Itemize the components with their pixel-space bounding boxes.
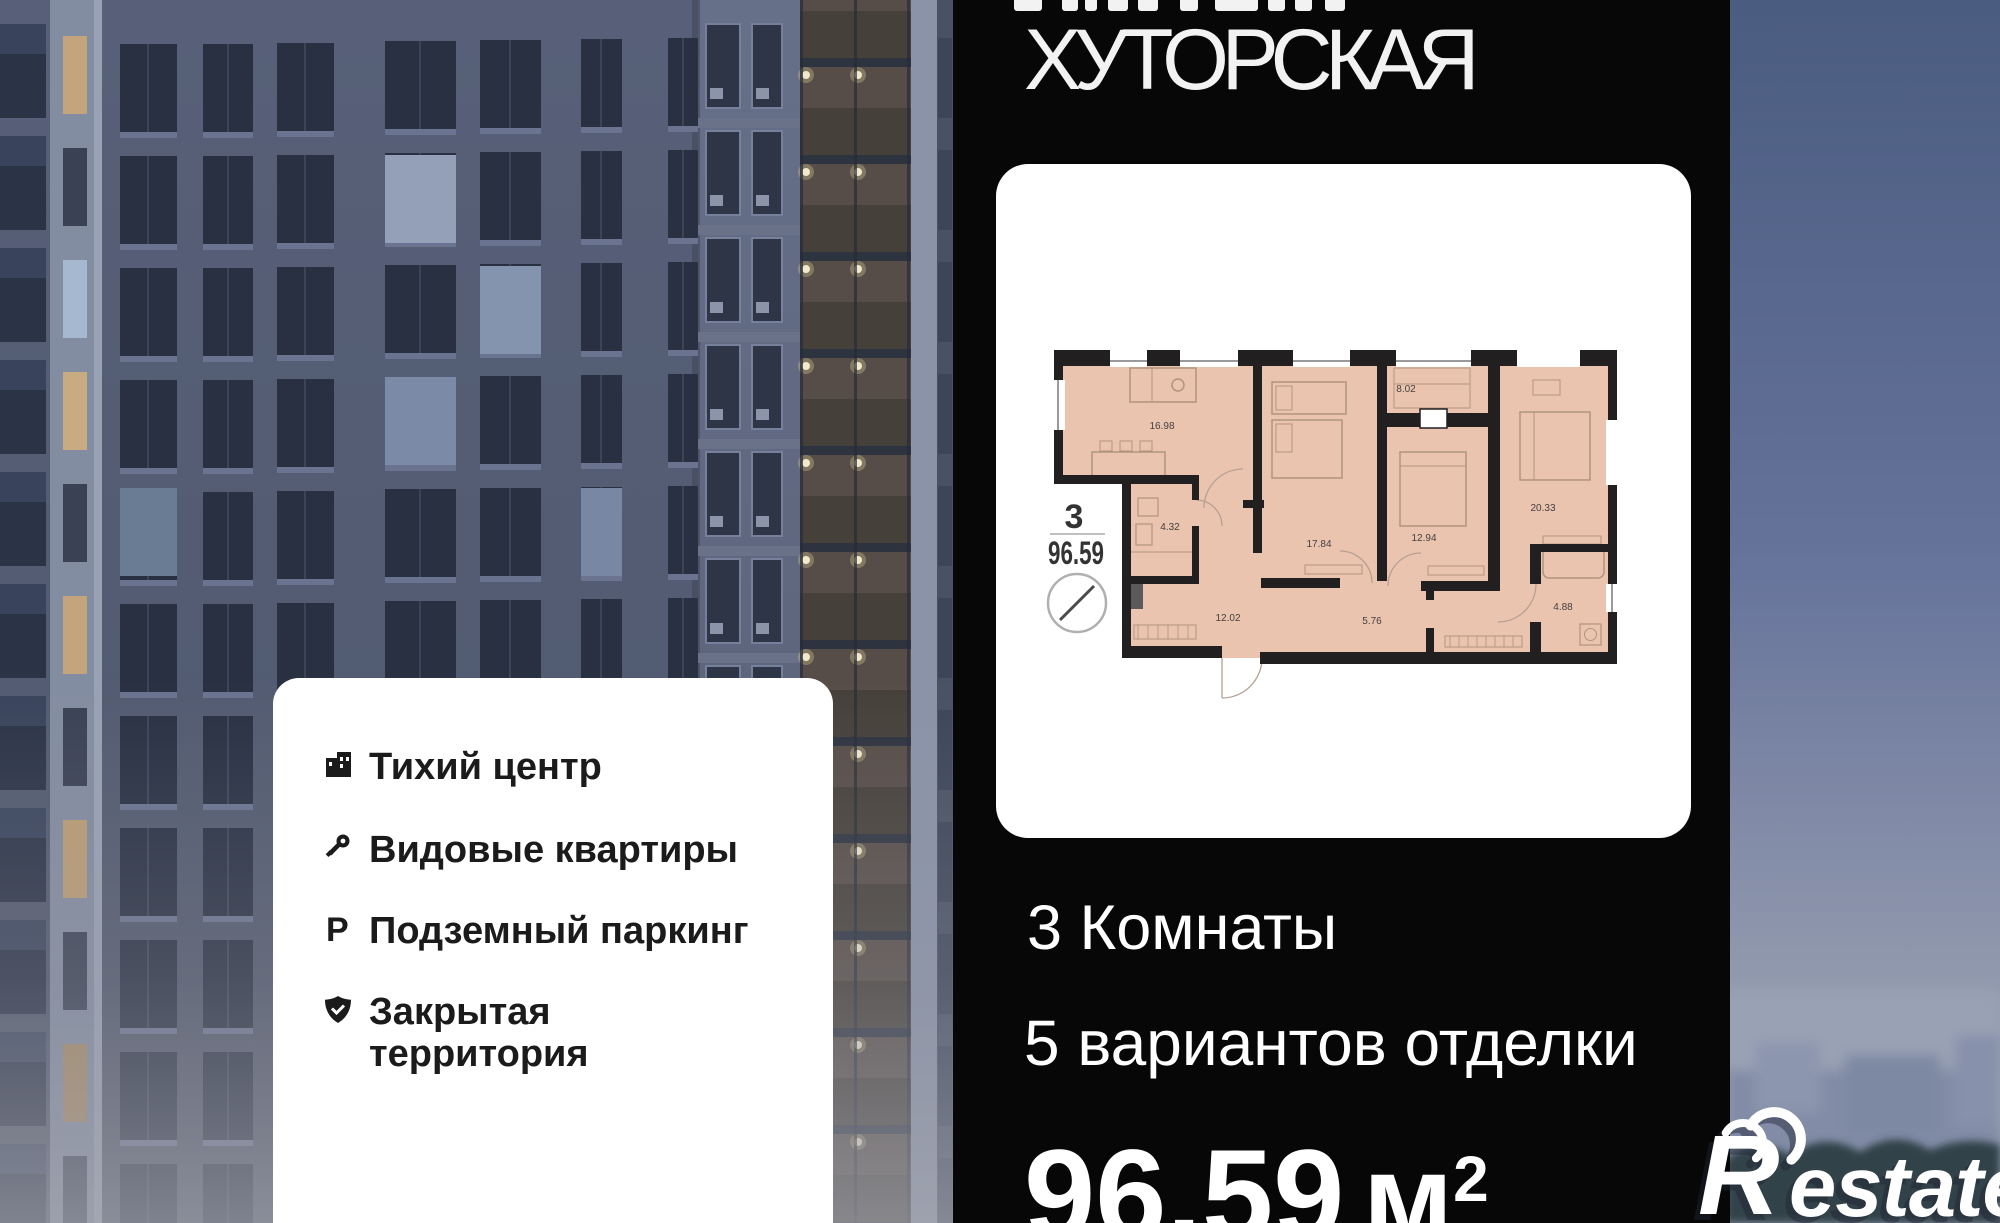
svg-text:12.94: 12.94	[1411, 533, 1436, 544]
svg-text:3: 3	[1065, 498, 1084, 536]
svg-text:12.02: 12.02	[1215, 613, 1240, 624]
svg-text:5.76: 5.76	[1362, 616, 1382, 627]
svg-text:20.33: 20.33	[1530, 503, 1555, 514]
svg-text:estate: estate	[1789, 1140, 2000, 1223]
svg-text:16.98: 16.98	[1149, 421, 1174, 432]
svg-text:4.88: 4.88	[1553, 602, 1573, 613]
svg-text:17.84: 17.84	[1306, 539, 1331, 550]
svg-text:R: R	[1698, 1112, 1780, 1223]
svg-text:96.59: 96.59	[1048, 535, 1104, 571]
svg-text:8.02: 8.02	[1396, 384, 1416, 395]
svg-text:4.32: 4.32	[1160, 522, 1180, 533]
